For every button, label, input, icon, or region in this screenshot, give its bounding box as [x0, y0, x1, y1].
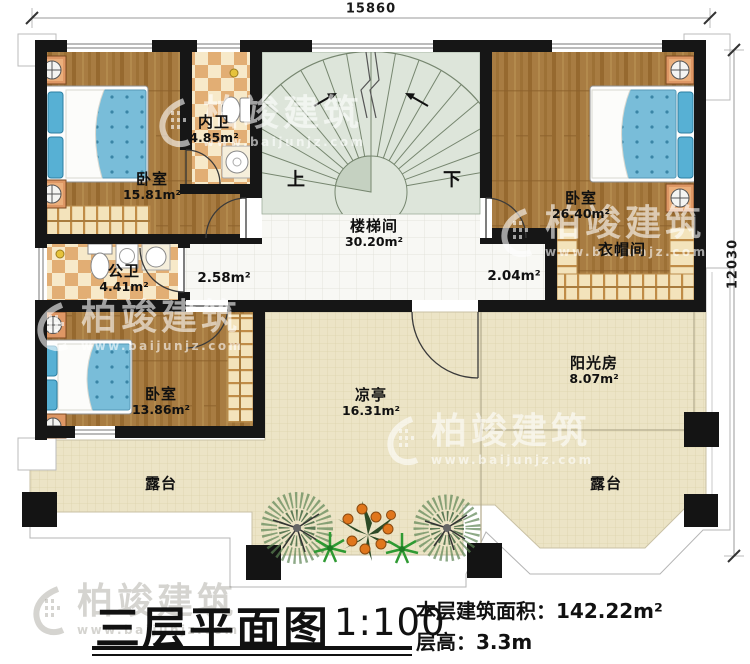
- floor-plan: 柏竣建筑www.baijunjz.com 柏竣建筑www.baijunjz.co…: [0, 0, 750, 664]
- label-stairs-up: 上: [287, 171, 305, 192]
- label-hall-right-area: 2.04m²: [487, 269, 540, 285]
- bed-bedroom2: [590, 86, 696, 182]
- label-sunroom: 阳光房 8.07m²: [569, 355, 618, 387]
- label-hall-left-area: 2.58m²: [197, 271, 250, 287]
- floor-plan-drawing: [0, 0, 750, 664]
- title-underline-2: [92, 654, 412, 656]
- label-stair-hall: 楼梯间 30.20m²: [345, 218, 403, 250]
- bed-bedroom1: [44, 86, 148, 182]
- label-bedroom1: 卧室 15.81m²: [123, 171, 181, 203]
- label-pavilion: 凉亭 16.31m²: [342, 387, 400, 419]
- bed-bedroom3: [40, 340, 132, 414]
- staircase: [233, 51, 509, 228]
- title-info: 本层建筑面积：142.22m² 层高：3.3m: [416, 596, 663, 658]
- label-bedroom3: 卧室 13.86m²: [132, 386, 190, 418]
- label-bedroom2: 卧室 26.40m²: [552, 190, 610, 222]
- label-stairs-down: 下: [443, 171, 461, 192]
- dimension-top: 15860: [346, 3, 396, 18]
- label-cloakroom: 衣帽间: [598, 241, 646, 258]
- floor-height-line: 层高：3.3m: [416, 627, 663, 658]
- label-inner-bath: 内卫 4.85m²: [189, 114, 238, 146]
- label-terrace-right: 露台: [590, 475, 622, 492]
- title-underline: [92, 646, 412, 654]
- floor-area-line: 本层建筑面积：142.22m²: [416, 596, 663, 627]
- label-public-bath: 公卫 4.41m²: [99, 263, 148, 295]
- label-terrace-left: 露台: [145, 475, 177, 492]
- dimension-right: 12030: [727, 239, 742, 289]
